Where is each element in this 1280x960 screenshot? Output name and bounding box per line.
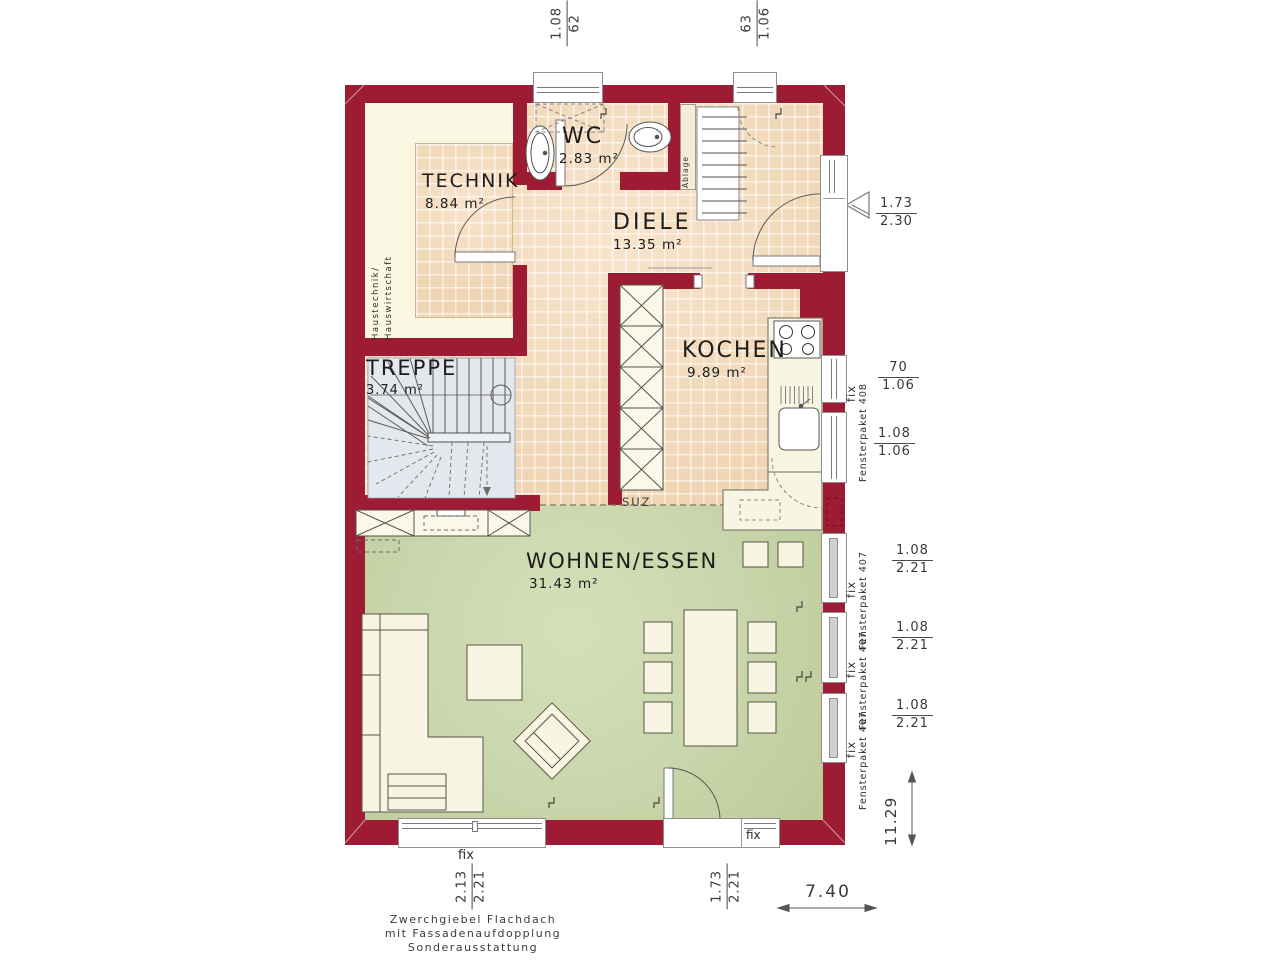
window-glass-band bbox=[829, 698, 838, 758]
total-width-dimension: 7.40 bbox=[788, 882, 868, 902]
technik-door-leaf bbox=[455, 252, 515, 262]
terrace-fix-label: fix bbox=[746, 828, 761, 842]
stool bbox=[743, 542, 768, 567]
kitchen-counter-extension bbox=[723, 472, 822, 530]
dim-top-window-right: 63 1.06 bbox=[740, 0, 775, 46]
kitchen-window-lower bbox=[821, 412, 847, 483]
dim-value: 2.30 bbox=[876, 214, 917, 231]
room-label-technik: TECHNIK bbox=[422, 170, 519, 192]
entrance-door-swing bbox=[753, 194, 820, 261]
caption-line-1: Zwerchgiebel Flachdach bbox=[383, 913, 563, 927]
fensterpaket-408-label: Fensterpaket 408 bbox=[858, 352, 869, 482]
dim-value: 70 bbox=[878, 360, 919, 378]
dim-kitchen-window-lower: 1.08 1.06 bbox=[874, 426, 915, 461]
living-window-2-fix-label: fix bbox=[844, 638, 858, 678]
dim-value: 1.08 bbox=[892, 698, 933, 716]
room-area-diele: 13.35 m² bbox=[613, 237, 683, 253]
window-glazing bbox=[737, 87, 773, 93]
dim-living-window-1: 1.08 2.21 bbox=[892, 543, 933, 578]
dim-value: 2.21 bbox=[892, 638, 933, 655]
dim-value: 1.06 bbox=[878, 378, 919, 395]
dim-bottom-door: 1.73 2.21 bbox=[710, 863, 745, 909]
kitchen-opening-post bbox=[746, 275, 754, 288]
kitchen-opening-post bbox=[694, 275, 702, 288]
entrance-sidelight-glazing bbox=[829, 160, 835, 193]
caption-line-3: Sonderausstattung bbox=[383, 941, 563, 955]
chair bbox=[644, 622, 672, 653]
stool bbox=[778, 542, 803, 567]
pier-dashed-detail bbox=[827, 498, 842, 526]
entrance-marker bbox=[846, 192, 869, 218]
chair bbox=[748, 622, 776, 653]
kitchen-window-fix-label: fix bbox=[844, 362, 858, 402]
terrace-door-swing bbox=[668, 768, 720, 820]
plan-caption: Zwerchgiebel Flachdach mit Fassadenaufdo… bbox=[383, 913, 563, 955]
living-sideboard bbox=[356, 510, 530, 552]
bottom-fixed-window bbox=[398, 818, 546, 848]
depth-dimension-arrow bbox=[909, 772, 916, 845]
bottom-window-fix-label: fix bbox=[458, 848, 474, 863]
dim-kitchen-window-upper: 70 1.06 bbox=[878, 360, 919, 395]
dim-value: 2.21 bbox=[892, 561, 933, 578]
window-glazing bbox=[831, 359, 837, 399]
dim-living-window-2: 1.08 2.21 bbox=[892, 620, 933, 655]
terrace-door-leaf bbox=[664, 768, 673, 820]
plan-overlay bbox=[0, 0, 1280, 960]
dim-value: 1.73 bbox=[876, 196, 917, 214]
terrace-door-surround: fix bbox=[663, 818, 780, 848]
dim-value: 2.13 bbox=[455, 863, 473, 909]
room-label-wc: WC bbox=[562, 124, 603, 149]
dim-value: 62 bbox=[568, 0, 585, 46]
dim-value: 63 bbox=[740, 0, 758, 46]
room-area-kochen: 9.89 m² bbox=[687, 365, 747, 381]
kitchen-tall-cabinets bbox=[620, 285, 663, 490]
chair bbox=[644, 702, 672, 733]
dim-value: 1.06 bbox=[758, 0, 775, 46]
fensterpaket-407-label-3: Fensterpaket 407 bbox=[858, 690, 869, 810]
chair bbox=[748, 702, 776, 733]
dining-table bbox=[684, 610, 737, 746]
room-label-treppe: TREPPE bbox=[366, 356, 457, 380]
entrance-door-leaf bbox=[753, 256, 820, 266]
hall-wardrobe bbox=[697, 107, 747, 220]
dim-value: 1.08 bbox=[892, 620, 933, 638]
dim-value: 1.73 bbox=[710, 863, 728, 909]
room-label-wohnen: WOHNEN/ESSEN bbox=[526, 549, 718, 573]
room-area-treppe: 3.74 m² bbox=[366, 383, 424, 398]
dim-value: 2.21 bbox=[473, 863, 490, 909]
sofa bbox=[362, 614, 483, 812]
width-dimension-arrow bbox=[778, 905, 876, 912]
room-area-wc: 2.83 m² bbox=[559, 151, 619, 167]
suz-label: SUZ bbox=[622, 495, 651, 509]
coffee-table bbox=[467, 645, 522, 700]
dim-bottom-window: 2.13 2.21 bbox=[455, 863, 490, 909]
room-area-wohnen: 31.43 m² bbox=[529, 576, 599, 592]
floor-plan: fix TECHNIK 8.84 m² WC 2.83 m² DIELE 13.… bbox=[0, 0, 1280, 960]
dim-value: 2.21 bbox=[728, 863, 745, 909]
window-mullion bbox=[472, 821, 478, 832]
window-glass-band bbox=[829, 617, 838, 678]
dim-value: 1.06 bbox=[874, 444, 915, 461]
haustechnik-label-line2: Hauswirtschaft bbox=[384, 190, 394, 340]
chair bbox=[748, 662, 776, 693]
dim-value: 1.08 bbox=[874, 426, 915, 444]
dim-value: 2.21 bbox=[892, 716, 933, 733]
room-label-diele: DIELE bbox=[613, 210, 692, 235]
caption-line-2: mit Fassadenaufdopplung bbox=[383, 927, 563, 941]
window-glazing bbox=[831, 416, 837, 479]
chair bbox=[644, 662, 672, 693]
room-area-technik: 8.84 m² bbox=[425, 196, 485, 212]
entrance-divider bbox=[823, 198, 845, 199]
lounge-chair bbox=[514, 703, 590, 779]
dim-value: 1.08 bbox=[550, 0, 568, 46]
ablage-label: Ablage bbox=[681, 128, 690, 188]
room-label-kochen: KOCHEN bbox=[682, 338, 787, 363]
living-window-3-fix-label: fix bbox=[844, 718, 858, 758]
window-glazing bbox=[537, 87, 599, 93]
kitchen-sink bbox=[779, 408, 819, 450]
living-window-1-fix-label: fix bbox=[844, 558, 858, 598]
dim-entrance-door: 1.73 2.30 bbox=[876, 196, 917, 231]
dim-value: 1.08 bbox=[892, 543, 933, 561]
window-glass-band bbox=[829, 538, 838, 598]
total-depth-dimension: 11.29 bbox=[882, 768, 900, 846]
haustechnik-label-line1: Haustechnik/ bbox=[371, 190, 381, 340]
dim-top-window-left: 1.08 62 bbox=[550, 0, 585, 46]
window-top-left bbox=[533, 72, 603, 103]
terrace-door-divider bbox=[741, 819, 742, 847]
dim-living-window-3: 1.08 2.21 bbox=[892, 698, 933, 733]
entrance-door-surround bbox=[820, 155, 848, 272]
window-top-right bbox=[733, 72, 777, 103]
